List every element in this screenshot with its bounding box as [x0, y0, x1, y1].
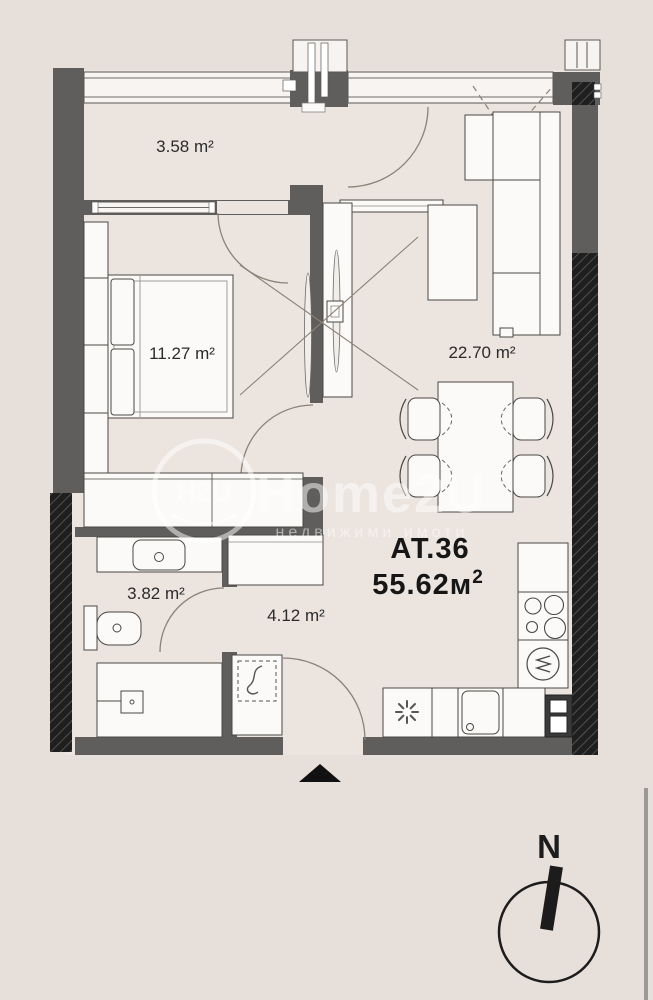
pillar-notch: [283, 80, 296, 91]
kitchen-cabinet: [518, 543, 568, 592]
watermark-logo-text: H2U: [176, 476, 232, 507]
tv-screen: [327, 301, 343, 322]
shower: [97, 663, 222, 737]
toilet-tank: [84, 606, 97, 650]
chair: [513, 398, 545, 440]
hallway-area-label: 4.12 m²: [267, 606, 325, 625]
sofa-foot: [500, 328, 513, 337]
wall-right-gray: [572, 105, 598, 253]
door-opening-bedroom-balcony: [217, 201, 288, 214]
bedroom-area-label: 11.27 m²: [149, 344, 215, 363]
wall-middle: [310, 185, 323, 403]
wall-left-upper: [53, 68, 84, 493]
wall-right-hatched: [572, 253, 598, 755]
pillar-center: [290, 70, 348, 107]
stove: [518, 592, 568, 640]
pillow: [111, 279, 134, 345]
compass: N: [499, 828, 599, 982]
floor-plan-drawing: H2U Home2U недвижими имоти 3.58 m² 11.27…: [0, 0, 653, 1000]
toilet-bowl: [97, 612, 141, 645]
bathroom-area-label: 3.82 m²: [127, 584, 185, 603]
entrance-arrow-icon: [299, 764, 341, 782]
party-wall-stub-center: [293, 40, 347, 72]
chair: [513, 455, 545, 497]
floor-plan-page: H2U Home2U недвижими имоти 3.58 m² 11.27…: [0, 0, 653, 1000]
window-band-balcony: [84, 72, 292, 103]
living-room-area-label: 22.70 m²: [448, 343, 515, 362]
sofa-body: [493, 112, 560, 335]
pillar-sill: [302, 103, 325, 112]
kitchen-corner-counter: [503, 688, 545, 737]
wall-bottom-right: [363, 737, 572, 755]
kitchen-sink-unit: [458, 688, 503, 737]
compass-needle-icon: [540, 865, 563, 930]
sofa-chaise: [465, 115, 495, 180]
washing-machine-icon: [396, 701, 418, 723]
chair: [408, 398, 440, 440]
page-edge-line: [644, 788, 648, 1000]
party-wall-stub-right: [565, 40, 600, 70]
coffee-table: [428, 205, 477, 300]
wall-left-lower-hatched: [50, 493, 72, 752]
balcony-area-label: 3.58 m²: [156, 137, 214, 156]
hall-closet: [228, 535, 323, 585]
pillow: [111, 349, 134, 415]
bathroom-sink: [133, 540, 185, 570]
oven: [518, 640, 568, 688]
window-band-living: [348, 72, 553, 103]
water-heater-cabinet: [232, 655, 282, 735]
total-area-label: 55.62м2: [372, 567, 484, 601]
bedroom-side-closet: [84, 222, 108, 473]
apartment-id-label: АТ.36: [390, 533, 469, 565]
kitchen-counter: [432, 688, 458, 737]
wall-bottom-left: [75, 737, 283, 755]
compass-north-label: N: [537, 828, 561, 865]
watermark-brand: Home2U: [256, 464, 487, 524]
